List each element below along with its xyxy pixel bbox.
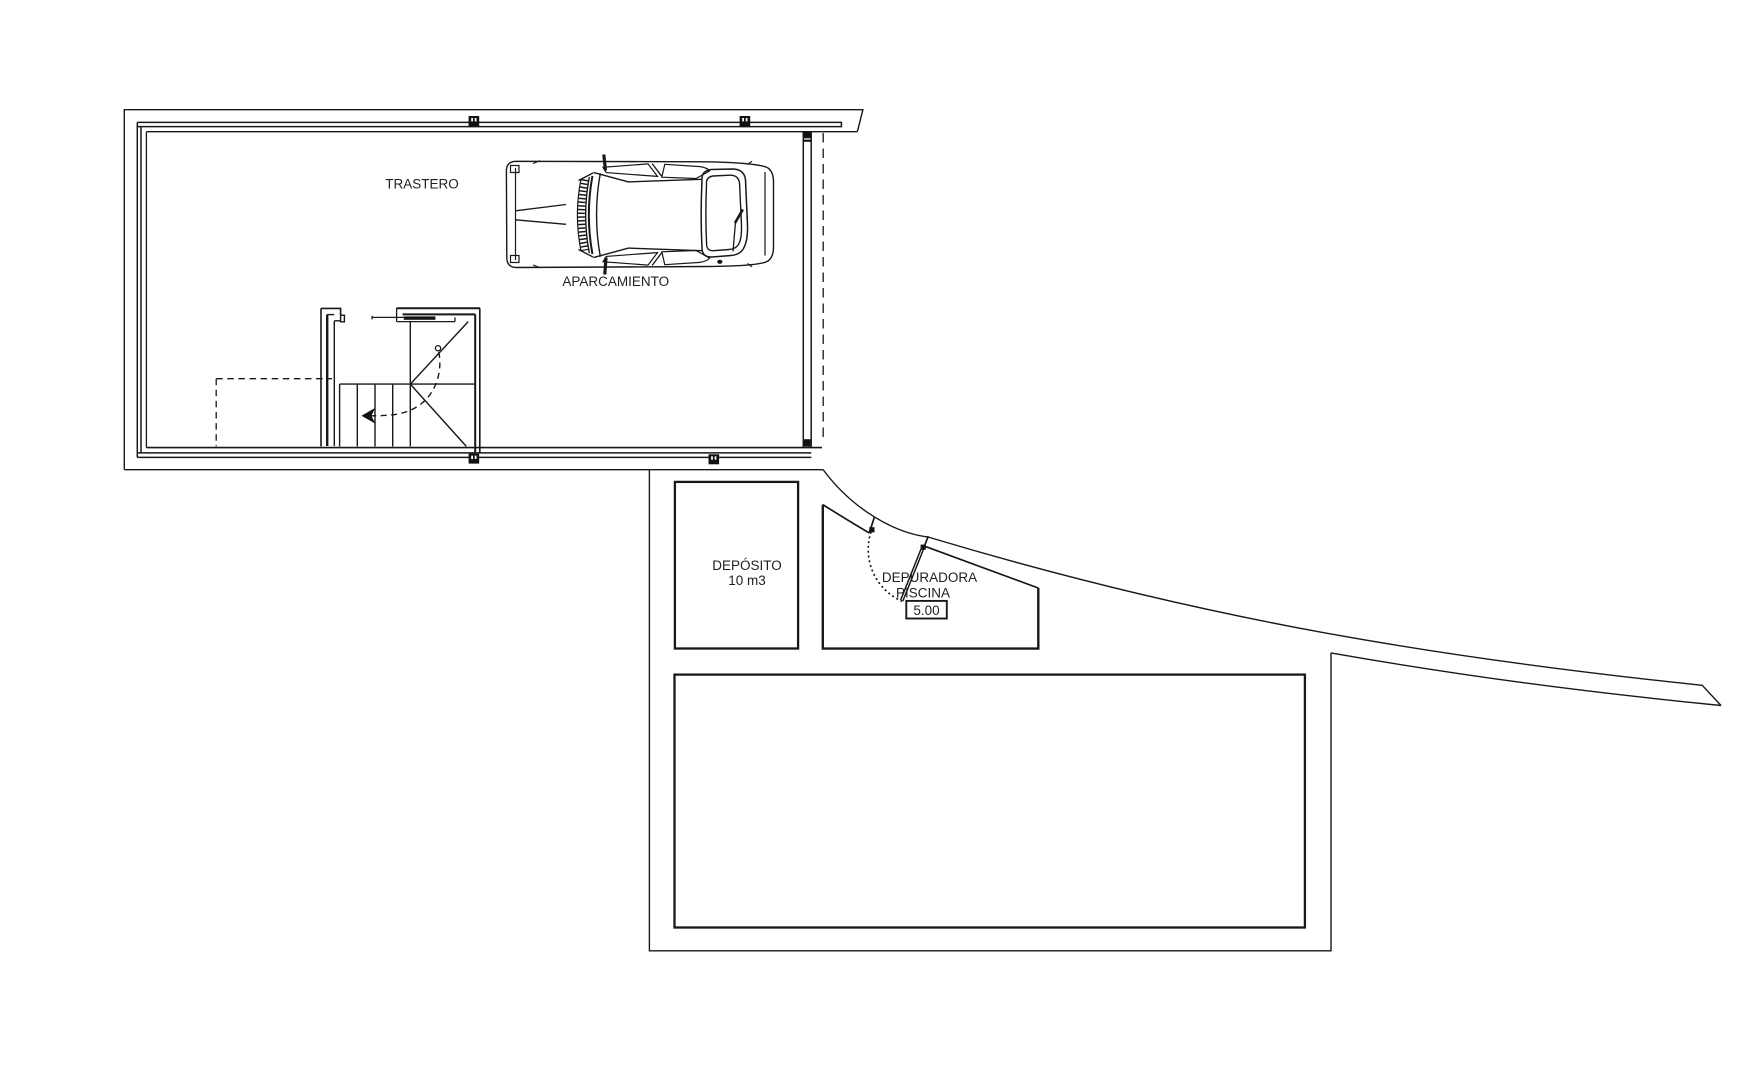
svg-text:10 m3: 10 m3 — [728, 573, 766, 588]
svg-text:DEPÓSITO: DEPÓSITO — [712, 558, 782, 573]
svg-text:DEPURADORA: DEPURADORA — [882, 570, 977, 585]
svg-text:TRASTERO: TRASTERO — [385, 176, 459, 191]
svg-text:APARCAMIENTO: APARCAMIENTO — [562, 274, 669, 289]
svg-text:PISCINA: PISCINA — [896, 586, 950, 601]
svg-text:5.00: 5.00 — [913, 603, 939, 618]
